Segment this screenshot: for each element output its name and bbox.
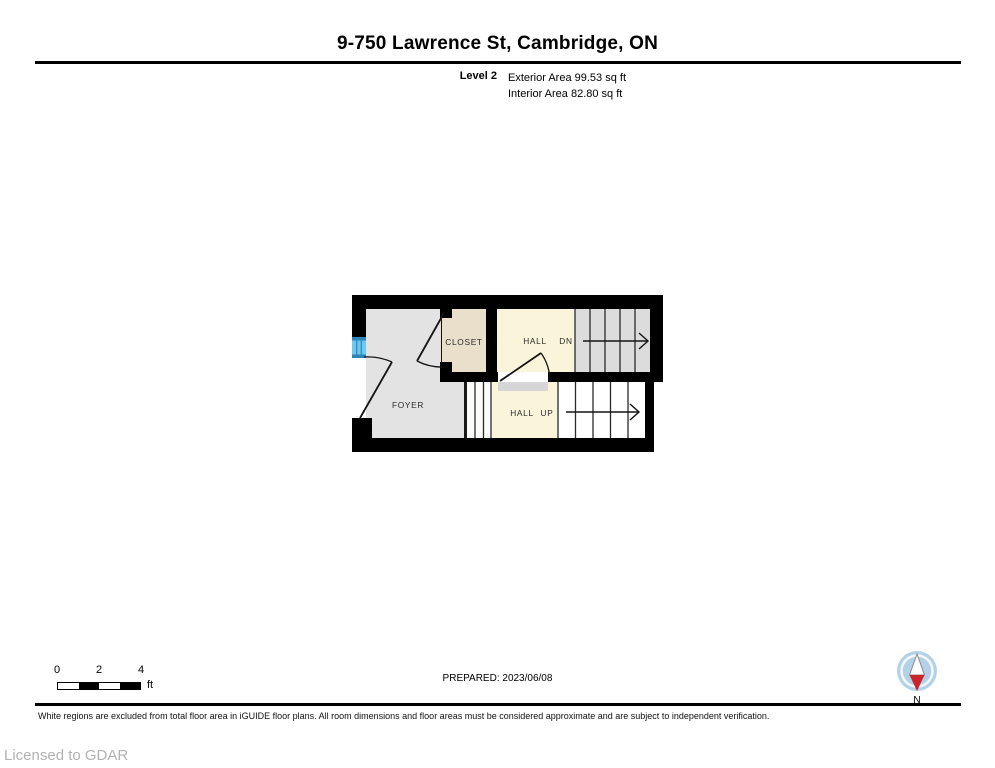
closet-label: CLOSET	[445, 337, 482, 347]
wall-right-upper	[650, 295, 663, 382]
exterior-area: Exterior Area 99.53 sq ft	[508, 70, 626, 86]
hall-lower-label: HALL	[510, 408, 534, 418]
hall-lower-direction-label: UP	[541, 408, 554, 418]
area-summary: Exterior Area 99.53 sq ft Interior Area …	[508, 70, 626, 102]
stairs-up-area	[558, 382, 645, 438]
license-text: Licensed to GDAR	[4, 747, 128, 764]
prepared-date: PREPARED: 2023/06/08	[0, 673, 995, 684]
footer-divider	[35, 703, 961, 706]
wall-left-upper	[352, 309, 366, 337]
header-divider	[35, 61, 961, 64]
foyer-label: FOYER	[392, 400, 424, 410]
hall-upper-direction-label: DN	[559, 336, 572, 346]
door-threshold	[498, 382, 548, 391]
floor-plan-page: 9-750 Lawrence St, Cambridge, ON Level 2…	[0, 0, 995, 768]
window-symbol	[352, 337, 366, 358]
foyer-area	[366, 309, 442, 438]
hall-upper-label: HALL	[523, 336, 547, 346]
foyer-area-lower	[442, 382, 464, 438]
floor-plan-drawing: CLOSET HALL DN FOYER HALL UP	[352, 295, 663, 452]
steps-strip-edge	[464, 382, 467, 438]
wall-middle-left	[440, 372, 498, 382]
wall-top	[352, 295, 663, 309]
wall-bottom	[352, 438, 654, 452]
wall-right-lower	[645, 382, 654, 452]
level-label: Level 2	[397, 70, 497, 82]
wall-middle-right	[548, 372, 663, 382]
wall-entry-stub	[352, 418, 372, 438]
interior-area: Interior Area 82.80 sq ft	[508, 86, 626, 102]
disclaimer-text: White regions are excluded from total fl…	[38, 711, 965, 721]
wall-closet-right	[486, 309, 497, 372]
steps-strip-area	[466, 382, 492, 438]
window-glass	[352, 341, 366, 355]
page-title: 9-750 Lawrence St, Cambridge, ON	[0, 33, 995, 55]
compass: N	[895, 648, 939, 706]
